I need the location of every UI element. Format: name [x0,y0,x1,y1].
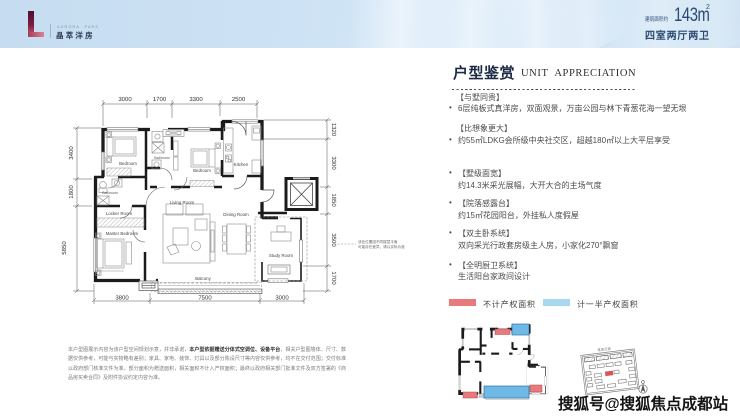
svg-text:Bedroom: Bedroom [193,168,211,173]
svg-text:7500: 7500 [198,295,212,302]
svg-text:该处位置因不同楼层平面: 该处位置因不同楼层平面 [358,239,398,244]
svg-text:1800: 1800 [68,185,75,199]
svg-text:Bathroom: Bathroom [154,156,170,160]
svg-text:Kitchen: Kitchen [234,162,249,167]
svg-text:3500: 3500 [330,233,337,247]
svg-text:Bedroom: Bedroom [119,161,137,166]
svg-text:Locker Room: Locker Room [106,211,132,216]
svg-text:1850: 1850 [330,193,337,207]
svg-text:Bathroom: Bathroom [102,191,118,195]
svg-text:可能存在差异，请以实际为准: 可能存在差异，请以实际为准 [358,244,405,249]
svg-text:2500: 2500 [232,96,246,103]
svg-text:3300: 3300 [330,156,337,170]
svg-text:3000: 3000 [118,96,132,103]
svg-text:3400: 3400 [68,146,75,160]
svg-text:某某云座: 某某云座 [597,346,612,353]
svg-text:Living Room: Living Room [170,200,195,205]
svg-text:3800: 3800 [115,295,129,302]
svg-text:3000: 3000 [275,295,289,302]
svg-text:1320: 1320 [330,123,337,137]
svg-text:Study Room: Study Room [269,253,294,258]
svg-text:Balcony: Balcony [195,276,211,281]
svg-text:Dining Room: Dining Room [223,212,249,217]
svg-text:1700: 1700 [153,96,167,103]
svg-text:5850: 5850 [61,241,68,255]
svg-text:3300: 3300 [189,96,203,103]
svg-text:1700: 1700 [330,271,337,285]
